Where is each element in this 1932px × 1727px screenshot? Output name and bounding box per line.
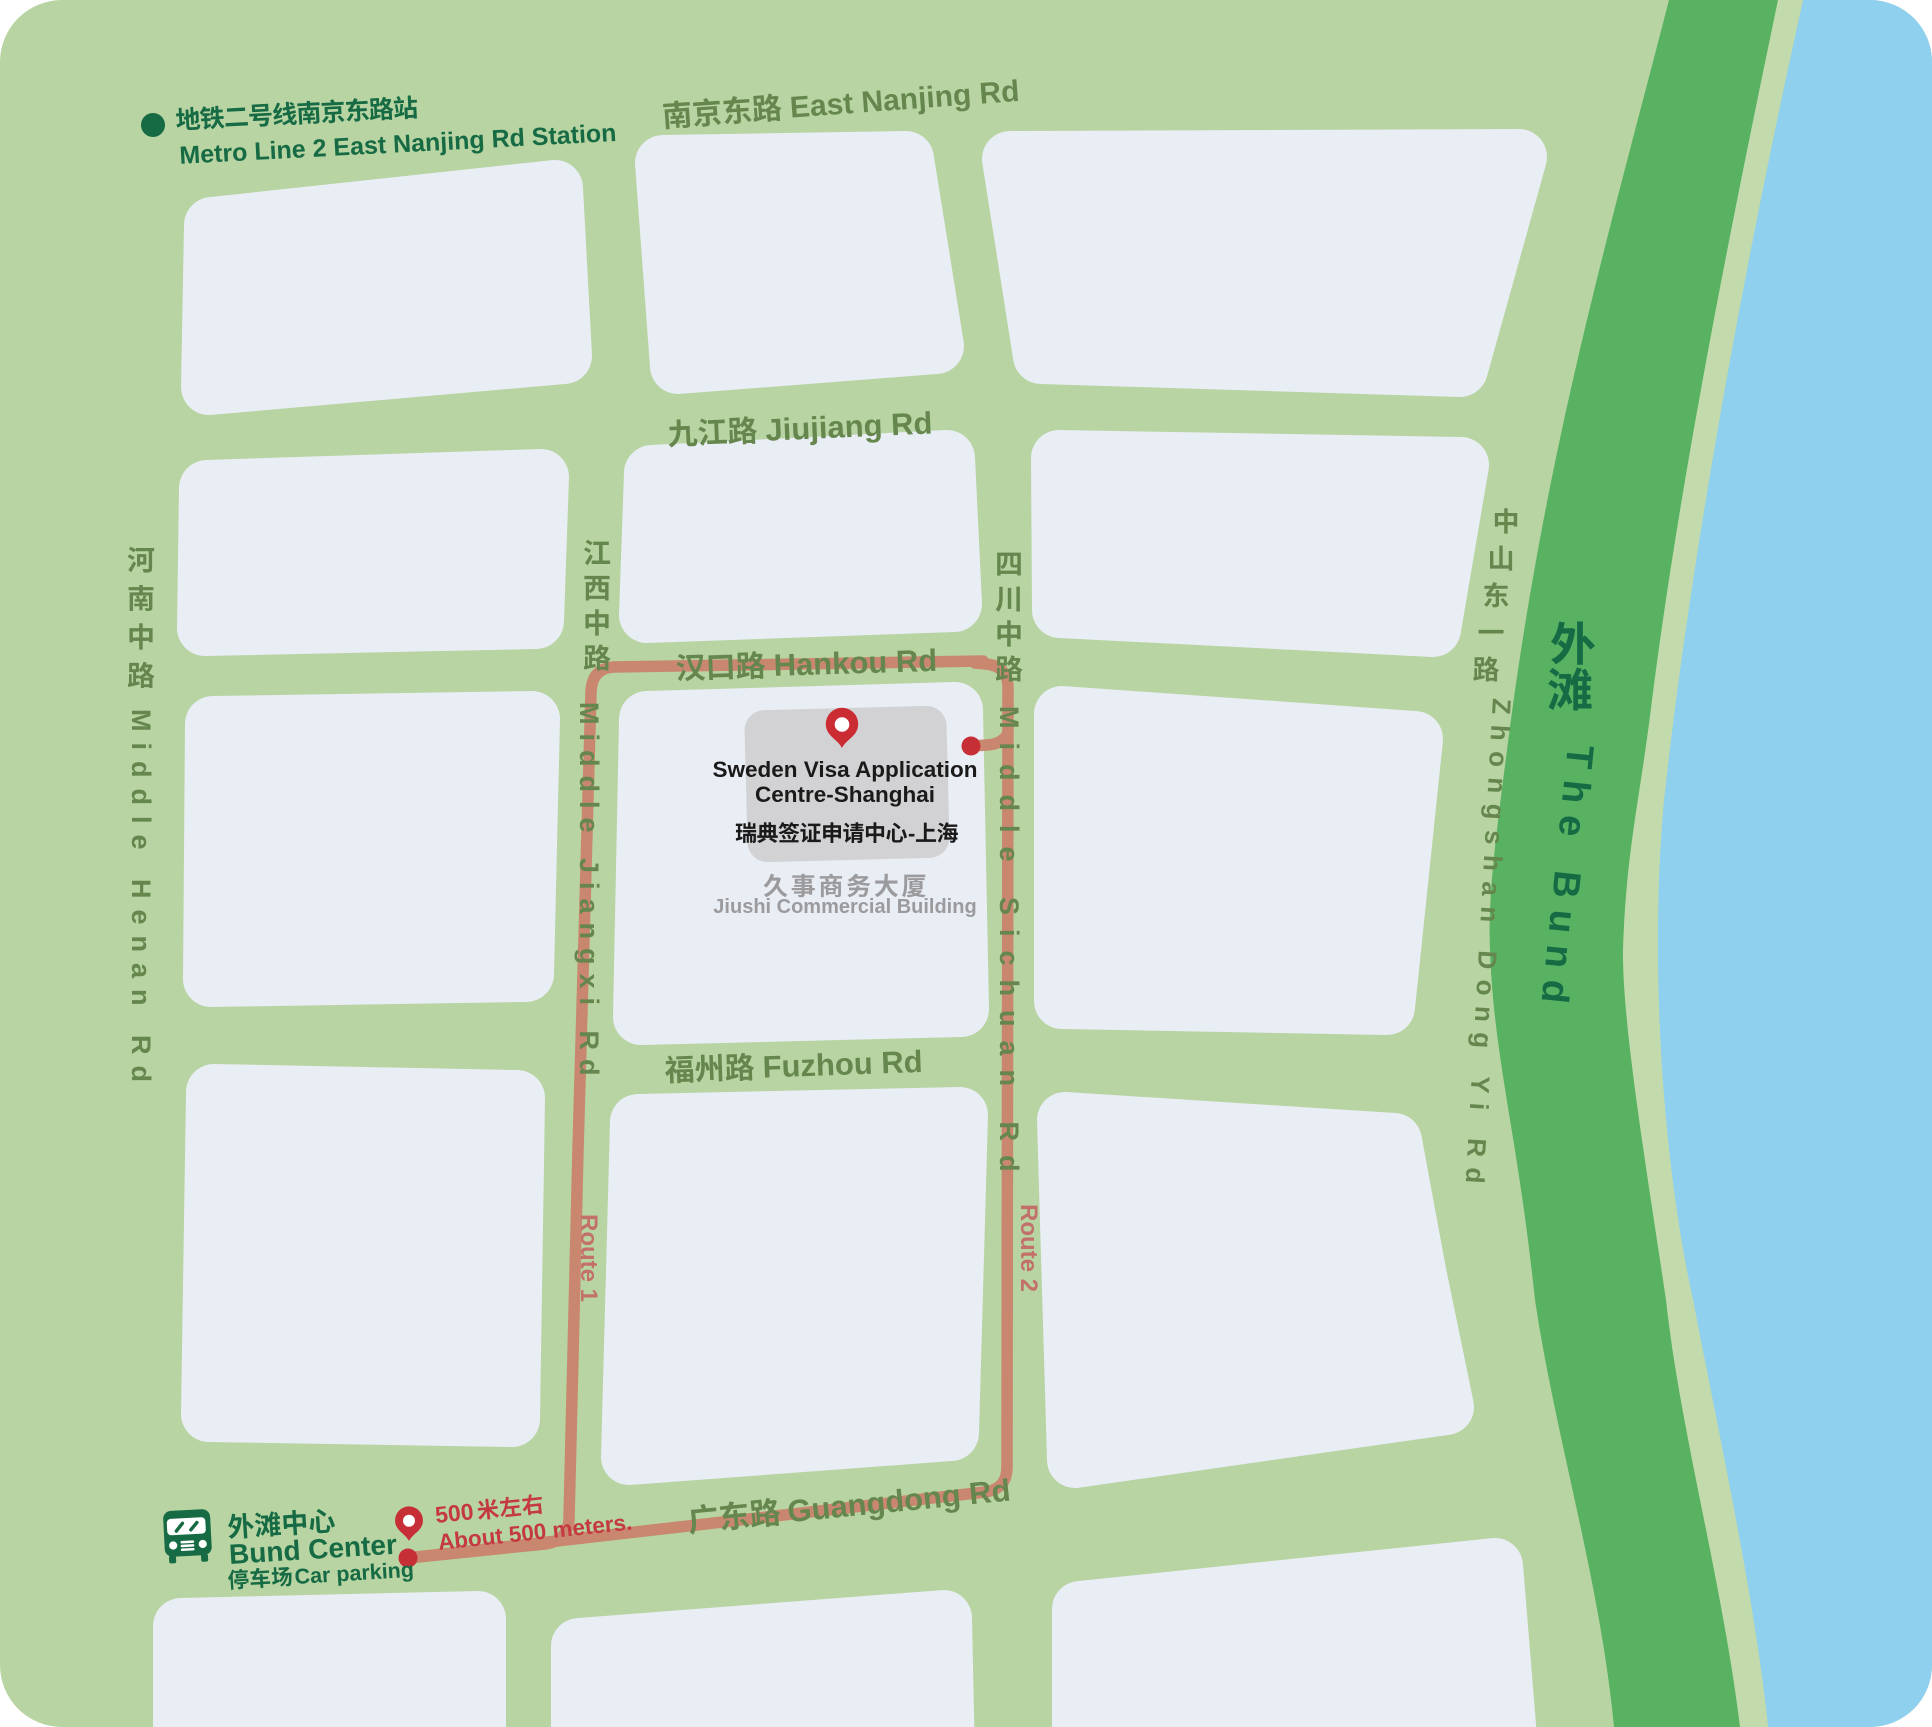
svg-text:Middle Sichuan Rd: Middle Sichuan Rd (994, 706, 1024, 1186)
svg-text:Hankou Rd: Hankou Rd (773, 643, 938, 683)
svg-text:Sweden Visa Application: Sweden Visa Application (712, 757, 977, 782)
svg-text:Route 2: Route 2 (1015, 1204, 1042, 1292)
svg-text:Fuzhou Rd: Fuzhou Rd (762, 1044, 923, 1085)
svg-text:Middle Jiangxi Rd: Middle Jiangxi Rd (574, 702, 604, 1085)
svg-text:Centre-Shanghai: Centre-Shanghai (755, 782, 935, 807)
svg-text:Route 1: Route 1 (575, 1214, 602, 1302)
svg-text:Jiushi Commercial Building: Jiushi Commercial Building (713, 896, 976, 918)
svg-text:-: - (908, 821, 915, 846)
svg-text:500: 500 (434, 1498, 475, 1528)
svg-text:Middle Henan Rd: Middle Henan Rd (126, 709, 156, 1093)
svg-text:Jiujiang Rd: Jiujiang Rd (765, 405, 933, 447)
